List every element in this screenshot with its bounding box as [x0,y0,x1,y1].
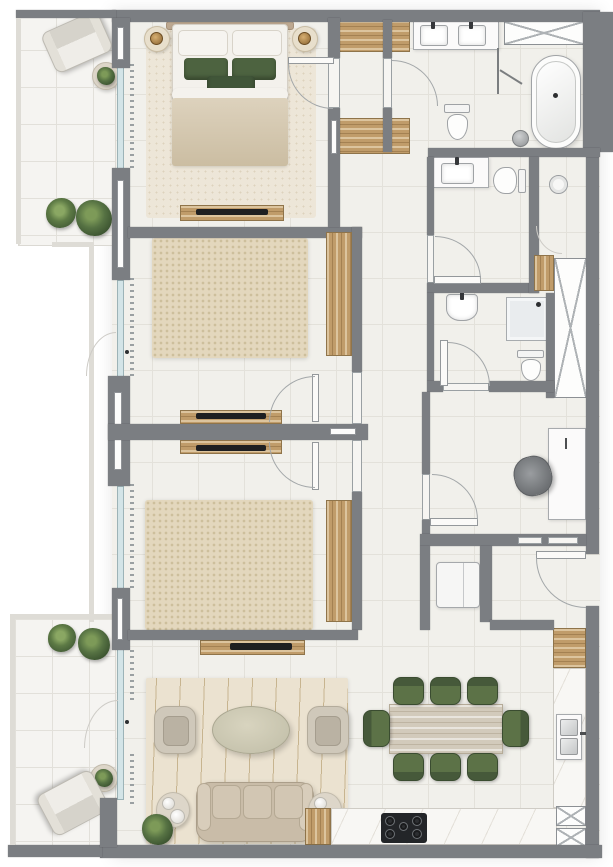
masterbath-toilet-tank [444,104,470,113]
burner-center [399,822,408,831]
sofa-cushion-1 [212,785,241,819]
facade-line-vertical [89,242,94,622]
bed1-pillow-left [178,30,228,56]
bed1-blanket [172,98,288,166]
masterbath-left-wall-upper [383,20,392,58]
curtain-living-upper [130,650,134,704]
bath3-left-wall [427,293,434,381]
sofa-cushion-3 [274,785,303,819]
bath3-shower [506,297,548,341]
wall-bed3-living [128,630,358,640]
sofa-cushion-2 [243,785,272,819]
window-living [117,648,124,800]
burner-2 [385,829,395,839]
bed1-right-wall-upper [328,18,340,58]
living-tv [230,643,292,650]
bath3-bottom-wall-right [489,381,554,392]
bath3-toilet-tank [517,350,544,358]
bed2-tv [196,413,266,419]
wall-balcony-top [16,10,116,18]
masterbath-stool [512,130,529,147]
window-bedroom3 [117,486,124,590]
armchair-left-cushion [163,716,189,746]
burner-1 [385,816,395,826]
wall-f [428,148,600,157]
bed2-door-opening [352,372,362,424]
bath3-door-leaf [440,340,448,386]
burner-4 [412,829,422,839]
kitchen-cabinet-wood-left [305,808,331,845]
living-plant [142,814,173,845]
bath2-sink [441,163,474,184]
burner-3 [412,816,422,826]
coffee-table [212,706,290,754]
tall-linen-closet [554,258,587,398]
study-left-wall [422,392,430,474]
dining-chair-bottom-3 [467,753,498,781]
wall-balcony-top-left [16,18,21,244]
dressing-wardrobe-mid [332,118,410,154]
pier-2-niche [117,180,124,268]
kitchen-sink-basin-1 [560,719,578,736]
balcony-plant-pot-top [97,67,115,85]
study-desk [548,428,586,520]
study-pen [565,438,567,449]
bath3-faucet [460,292,464,300]
wall-balcony-bottom [8,845,102,857]
pier-5 [100,798,117,847]
bath3-shower-drain [536,302,541,307]
kitchen-counter-bottom [331,808,557,845]
masterbath-left-wall-lower [383,108,392,152]
side-table-left-lamp-2 [170,809,185,824]
curtain-bedroom3 [130,484,134,588]
fridge-nook-right-wall [480,546,492,622]
kitchen-sink-basin-2 [560,738,578,755]
side-table-left-lamp-1 [162,797,175,810]
bed3-right-wall [352,492,362,630]
masterbath-faucet-right [469,21,473,29]
dining-chair-top-1 [393,677,424,705]
bedroom3-rug [145,500,313,630]
dining-chair-bottom-1 [393,753,424,781]
balcony-plant-4 [78,628,110,660]
bath2-toilet-tank [518,169,526,193]
wall-top [112,10,600,22]
wall-b-niche [330,428,356,435]
bath2-door-opening [427,235,434,283]
bed3-tv [196,445,266,451]
bed2-right-wall [352,227,362,372]
bath2-left-wall [427,157,434,235]
wall-right-lower [586,606,599,858]
kitchen-cabinet-wood-right [553,628,586,668]
wall-b [108,424,368,440]
window-handle-living [125,720,129,724]
bath2-faucet [455,157,459,165]
pier-1-niche [117,27,124,60]
floor-plan-canvas [0,0,613,867]
entrance-bottom-wall [490,620,554,630]
lamp-bed1-left [150,32,163,45]
lamp-bed1-right [298,32,311,45]
wall-balcony-bottom-top [10,614,114,619]
wall-top-right-block [583,12,613,152]
dining-chair-right [502,710,529,747]
dining-chair-top-2 [430,677,461,705]
bedroom2-rug [152,238,308,358]
bed1-pillow-right [232,30,282,56]
window-bedroom1 [117,66,124,170]
window-handle-bedroom2 [125,350,129,354]
dining-table [389,704,503,754]
pier-4-niche [117,598,123,640]
masterbath-faucet-left [431,21,435,29]
entry-closet-panel-1 [518,537,542,544]
curtain-bedroom1 [130,64,134,170]
bed1-door-leaf [288,57,334,64]
wall-right-upper [586,152,599,554]
shower-room-cabinet [534,255,554,291]
masterbath-closet [504,21,584,45]
shower-room-basin [549,175,568,194]
bathtub-drain [553,93,558,98]
window-bedroom2 [117,280,124,380]
wall-bottom [100,845,602,858]
armchair-right-cushion [315,716,341,746]
dining-chair-top-3 [467,677,498,705]
dining-chair-left [363,710,390,747]
kitchen-xcabinet-1 [556,806,586,826]
bath2-bottom-wall [427,283,539,293]
bed3-wardrobe [326,500,352,622]
masterbath-door-opening [383,58,392,108]
bed3-door-opening [352,440,362,492]
balcony-plant-2 [76,200,112,236]
fridge [436,562,480,608]
bed1-right-niche [331,120,337,154]
curtain-living-lower [130,754,134,808]
curtain-bedroom2 [130,278,134,378]
fridge-nook-left-wall [420,546,430,630]
bed2-wardrobe [326,232,352,356]
bath2-toilet-bowl [493,167,517,194]
wall-balcony-bottom-left [10,618,15,845]
bathtub-inner [536,61,576,143]
dressing-wardrobe-top [332,20,410,52]
study-door-opening [422,474,430,520]
sofa-arm-left [197,783,211,831]
bed1-tv [196,209,268,215]
facade-line-horizontal [52,242,92,247]
entry-closet-panel-2 [548,537,578,544]
dining-chair-bottom-2 [430,753,461,781]
